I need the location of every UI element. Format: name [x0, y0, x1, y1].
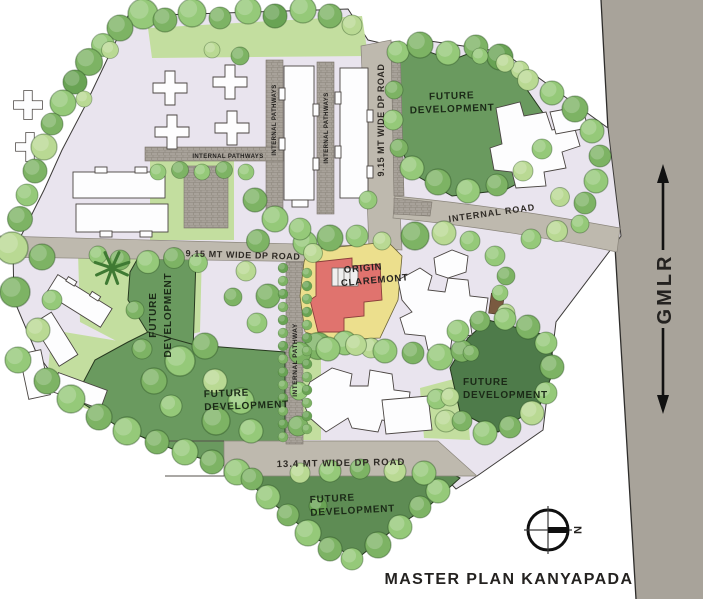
svg-text:FUTURE: FUTURE	[429, 90, 475, 103]
compass-north-letter: N	[571, 526, 583, 534]
site-plan-canvas: 9.15 MT WIDE DP ROAD 9.15 MT WIDE DP ROA…	[0, 0, 703, 599]
label-internal-pathways-v2: INTERNAL PATHWAYS	[324, 92, 330, 163]
master-plan-map: 9.15 MT WIDE DP ROAD 9.15 MT WIDE DP ROA…	[0, 0, 703, 599]
svg-text:FUTURE: FUTURE	[463, 377, 508, 388]
label-internal-pathways-h: INTERNAL PATHWAYS	[192, 154, 263, 160]
label-dp-road-915-v: 9.15 MT WIDE DP ROAD	[376, 64, 386, 177]
page-title: MASTER PLAN KANYAPADA	[385, 571, 634, 588]
svg-text:FUTURE: FUTURE	[204, 388, 250, 401]
label-internal-pathways-v1: INTERNAL PATHWAYS	[272, 84, 278, 155]
slab-building-b	[335, 68, 373, 198]
label-internal-pathway-v: INTERNAL PATHWAY	[292, 323, 299, 397]
label-dp-road-134: 13.4 MT WIDE DP ROAD	[277, 457, 406, 470]
svg-text:DEVELOPMENT: DEVELOPMENT	[463, 390, 548, 401]
slab-building-d	[76, 204, 168, 237]
label-gmlr: GMLR	[654, 254, 676, 325]
svg-text:DEVELOPMENT: DEVELOPMENT	[163, 273, 174, 358]
svg-text:FUTURE: FUTURE	[148, 292, 159, 337]
slab-building-a	[279, 66, 319, 207]
